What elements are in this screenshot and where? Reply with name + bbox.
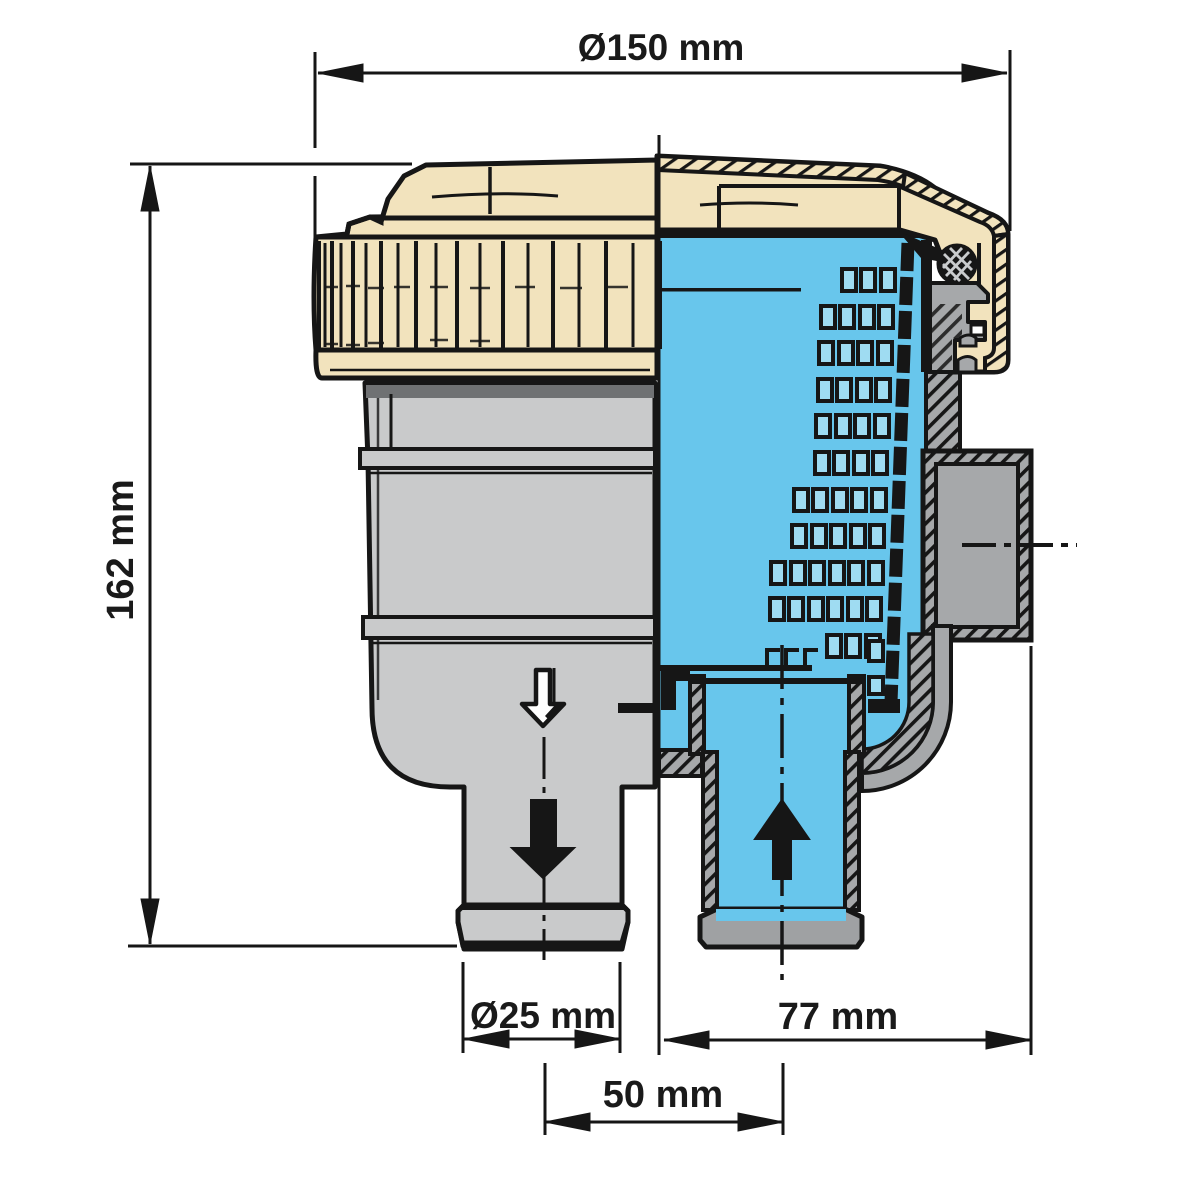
svg-text:Ø25 mm: Ø25 mm <box>470 995 616 1036</box>
svg-text:Ø150 mm: Ø150 mm <box>578 27 745 68</box>
svg-text:50 mm: 50 mm <box>603 1074 723 1116</box>
svg-text:162 mm: 162 mm <box>100 479 142 621</box>
svg-text:77 mm: 77 mm <box>778 996 898 1038</box>
